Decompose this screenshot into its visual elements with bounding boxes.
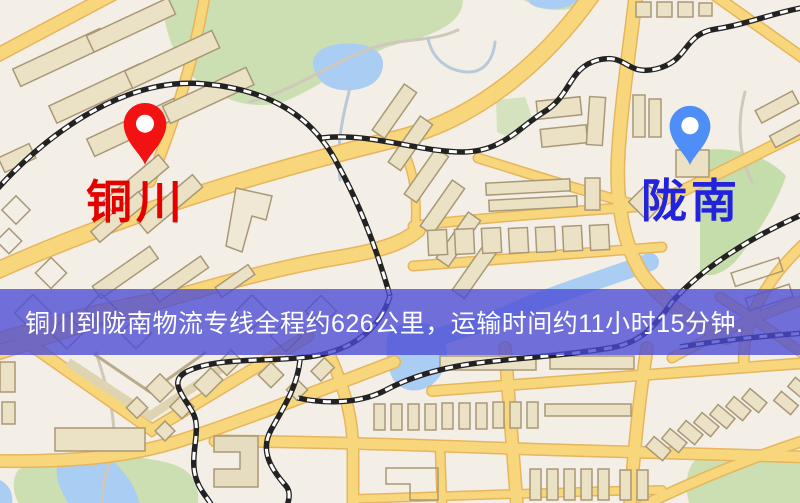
origin-pin[interactable] [121, 101, 169, 168]
origin-pin-hole [136, 115, 154, 133]
origin-pin-icon [124, 103, 167, 165]
map-background [0, 0, 800, 503]
route-info-banner: 铜川到陇南物流专线全程约626公里，运输时间约11小时15分钟. [0, 289, 800, 355]
destination-pin-icon [670, 106, 711, 165]
destination-pin-hole [681, 117, 698, 134]
route-info-text: 铜川到陇南物流专线全程约626公里，运输时间约11小时15分钟. [25, 304, 743, 340]
map-screenshot: 铜川到陇南物流专线全程约626公里，运输时间约11小时15分钟. 铜川 陇南 [0, 0, 800, 503]
destination-pin[interactable] [667, 104, 713, 168]
origin-city-label: 铜川 [86, 179, 186, 225]
destination-city-label: 陇南 [641, 178, 741, 224]
